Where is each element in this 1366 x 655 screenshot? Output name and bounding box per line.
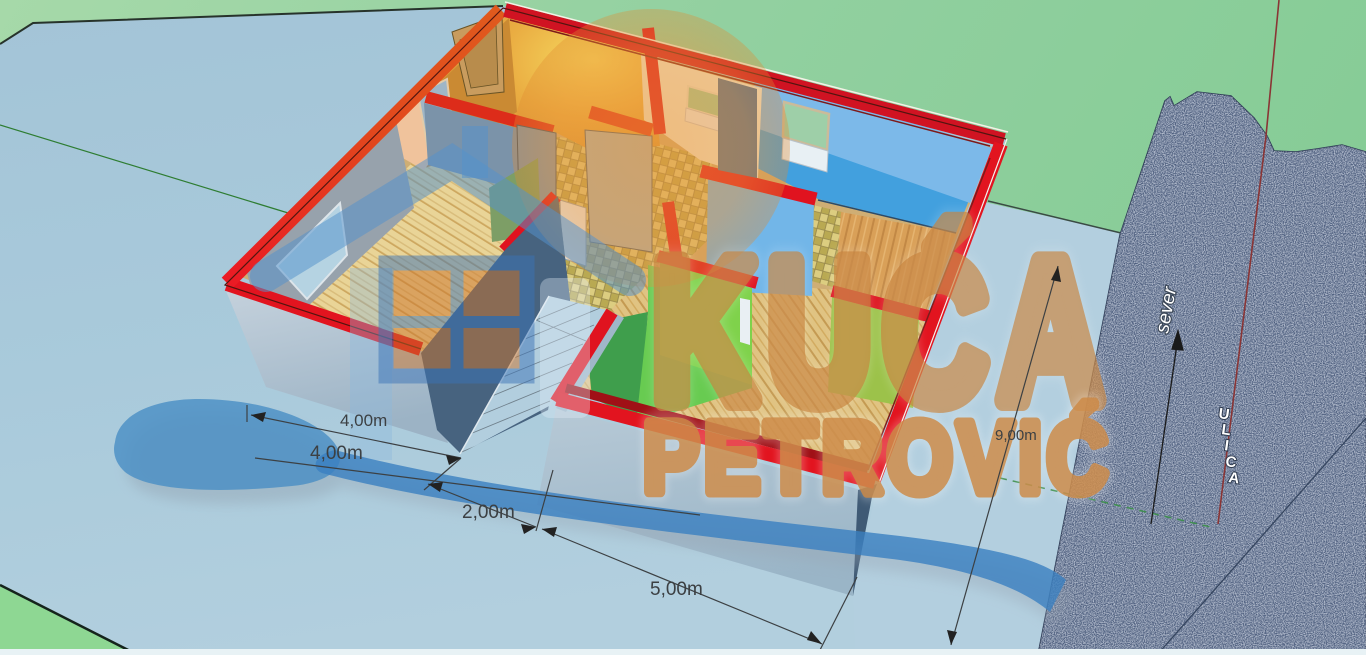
svg-text:4,00m: 4,00m (340, 411, 387, 430)
svg-text:4,00m: 4,00m (310, 443, 363, 464)
svg-text:5,00m: 5,00m (650, 579, 703, 600)
svg-text:9,00m: 9,00m (995, 427, 1037, 444)
svg-text:2,00m: 2,00m (462, 502, 515, 523)
svg-text:PETROVIĆ: PETROVIĆ (643, 401, 1113, 514)
